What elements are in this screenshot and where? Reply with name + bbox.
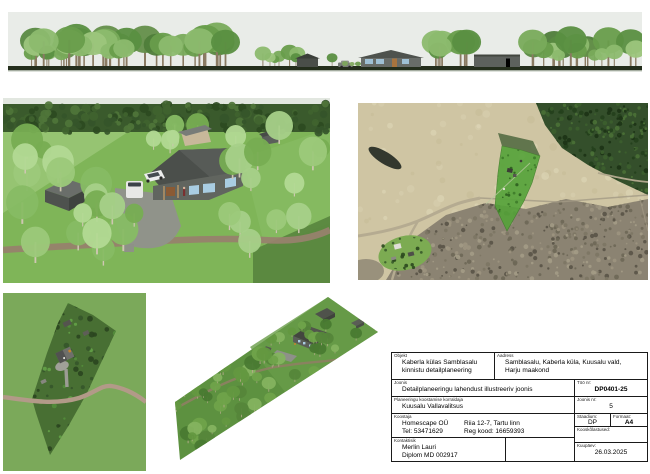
- title-block: Objekt Kaberla külas Samblasalu kinnistu…: [391, 352, 648, 462]
- site-plan-panel: [3, 293, 146, 471]
- kontakt-name: Merlin Lauri: [402, 444, 503, 452]
- title-block-empty-cell: [506, 438, 575, 461]
- title-block-aadress-cell: Aadress Samblasalu, Kaberla küla, Kuusal…: [495, 353, 647, 380]
- too-nr-value: DP0401-25: [577, 386, 645, 394]
- title-block-kooskolastused-cell: Kooskõlastused:: [575, 427, 647, 443]
- site-plan-graphic: [3, 293, 146, 471]
- koostaja-address: Riia 12-7, Tartu linn: [464, 420, 572, 428]
- kontakt-cred: Diplom MD 002917: [402, 452, 503, 460]
- joonis-nr-value: 5: [577, 403, 645, 411]
- isometric-view-panel: [165, 292, 390, 470]
- elevation-outbuilding: [474, 55, 520, 68]
- staadium-value: DP: [577, 419, 608, 427]
- koostaja-tel: Tel: 53471629: [402, 428, 464, 436]
- kooskolastused-label: Kooskõlastused:: [577, 428, 645, 433]
- aadress-value-line1: Samblasalu, Kaberla küla, Kuusalu vald,: [505, 359, 645, 367]
- title-block-kontakt-cell: Kontaktisik Merlin Lauri Diplom MD 00291…: [392, 438, 506, 461]
- formaat-value: A4: [613, 419, 645, 427]
- title-block-joonis-nr-cell: Joonis nr: 5: [575, 397, 647, 414]
- objekt-value-line1: Kaberla külas Samblasalu: [402, 359, 492, 367]
- kuupaev-value: 26.03.2025: [577, 449, 645, 457]
- title-block-kuupaev-cell: Kuupäev: 26.03.2025: [575, 443, 647, 461]
- render-van: [126, 181, 143, 198]
- title-block-formaat-cell: Formaat: A4: [611, 414, 647, 427]
- site-render-graphic: [3, 98, 330, 283]
- elevation-view-graphic: [8, 12, 642, 74]
- title-block-joonis-cell: Joonis Detailplaneeringu lahendust illus…: [392, 380, 575, 397]
- aerial-photo-panel: [358, 103, 648, 280]
- aerial-photo-graphic: [358, 103, 648, 280]
- title-block-too-nr-cell: Töö nr: DP0401-25: [575, 380, 647, 397]
- title-block-staadium-cell: Staadium: DP: [575, 414, 611, 427]
- joonis-value: Detailplaneeringu lahendust illustreeriv…: [402, 386, 572, 394]
- aadress-value-line2: Harju maakond: [505, 367, 645, 375]
- elevation-view-panel: [8, 12, 642, 74]
- korraldaja-value: Kuusalu Vallavalitsus: [402, 403, 572, 411]
- title-block-objekt-cell: Objekt Kaberla külas Samblasalu kinnistu…: [392, 353, 495, 380]
- title-block-korraldaja-cell: Planeeringu koostamise korraldaja Kuusal…: [392, 397, 575, 414]
- koostaja-reg: Reg kood: 16659393: [464, 428, 572, 436]
- objekt-value-line2: kinnistu detailplaneering: [402, 367, 492, 375]
- title-block-koostaja-cell: Koostaja Homescape OÜ Riia 12-7, Tartu l…: [392, 414, 575, 438]
- isometric-view-graphic: [165, 292, 390, 470]
- koostaja-name: Homescape OÜ: [402, 420, 464, 428]
- site-render-panel: [3, 98, 330, 283]
